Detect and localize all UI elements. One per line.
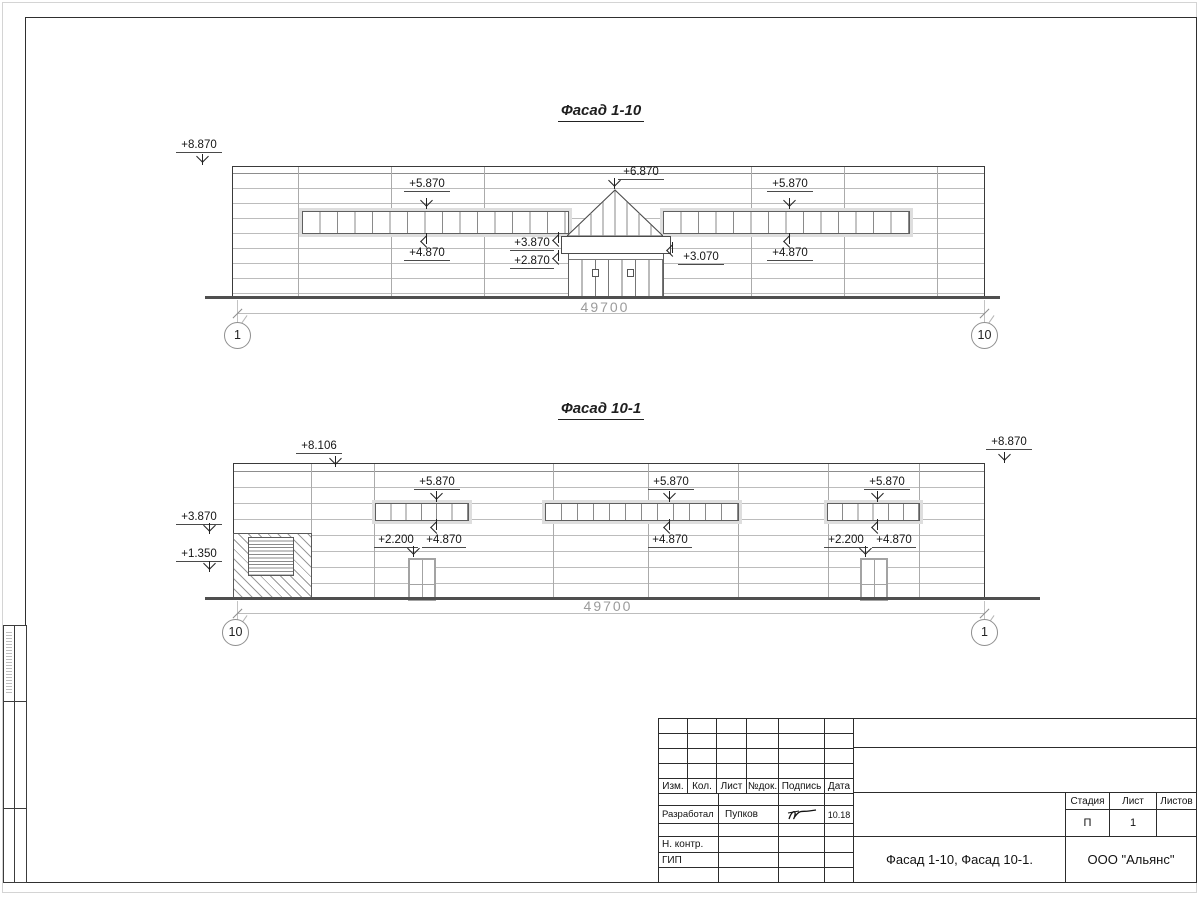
door-handle-icon xyxy=(627,269,634,277)
tb-cell xyxy=(719,824,779,837)
door-mullion xyxy=(422,560,423,599)
tb-cell xyxy=(779,824,825,837)
tb-cell xyxy=(747,749,779,764)
tb-cell xyxy=(717,749,747,764)
tb-designation-strip xyxy=(854,719,1196,748)
side-stamp-divider xyxy=(14,626,15,882)
tb-cell xyxy=(779,868,825,882)
tb-cell xyxy=(717,719,747,734)
facade2-title: Фасад 10-1 xyxy=(558,400,644,420)
elevation-mark-up-icon xyxy=(420,232,434,244)
elevation-mark-down-icon xyxy=(203,523,217,535)
side-stamp-row-line xyxy=(4,808,26,809)
door-handle-icon xyxy=(592,269,599,277)
tb-company: ООО "Альянс" xyxy=(1066,837,1196,882)
elevation-mark-up-icon xyxy=(663,518,677,530)
facade2-panel-joint xyxy=(374,464,375,598)
elevation-label: +3.070 xyxy=(678,251,724,265)
tb-cell xyxy=(659,794,719,806)
elevation-label: +8.870 xyxy=(986,436,1032,450)
side-stamp xyxy=(3,625,27,883)
facade1-dimension-text: 49700 xyxy=(555,301,655,313)
tb-header-sign: Подпись xyxy=(779,779,825,794)
tb-header-doc: №док. xyxy=(747,779,779,794)
facade2-panel-joint xyxy=(738,464,739,598)
elevation-mark-down-icon xyxy=(783,198,797,210)
elevation-mark-up-icon xyxy=(430,518,444,530)
tb-gip-label: ГИП xyxy=(659,853,719,868)
tb-razrab-signature xyxy=(779,806,825,824)
elevation-label: +5.870 xyxy=(864,476,910,490)
elevation-mark-down-icon xyxy=(420,198,434,210)
tb-cell xyxy=(779,853,825,868)
facade2-dimension-text: 49700 xyxy=(558,600,658,612)
drawing-sheet: Фасад 1-10 +8.870 +5.870 xyxy=(0,0,1200,900)
tb-cell xyxy=(825,719,854,734)
tb-cell xyxy=(854,793,1066,837)
tb-cell xyxy=(825,794,854,806)
elevation-label: +4.870 xyxy=(648,534,692,548)
elevation-mark-down-icon xyxy=(203,561,217,573)
tb-designation-strip2 xyxy=(854,748,1196,793)
facade1-parapet-band xyxy=(233,167,984,174)
facade1-window-strip-right xyxy=(663,211,910,234)
facade2-window-strip-2 xyxy=(545,503,739,521)
facade2-louver xyxy=(248,537,294,576)
entrance-mullions xyxy=(569,260,663,296)
facade1-canopy-pyramid xyxy=(567,189,663,237)
elevation-mark-down-icon xyxy=(998,452,1012,464)
tb-cell xyxy=(825,853,854,868)
tb-cell xyxy=(688,719,717,734)
tb-cell xyxy=(719,794,779,806)
tb-stage-value: П xyxy=(1066,810,1110,837)
tb-nkontr-label: Н. контр. xyxy=(659,837,719,853)
elevation-label: +5.870 xyxy=(404,178,450,192)
elevation-label: +1.350 xyxy=(176,548,222,562)
elevation-mark-up-icon xyxy=(871,518,885,530)
elevation-label: +8.870 xyxy=(176,139,222,153)
tb-sheets-label: Листов xyxy=(1157,793,1196,810)
elevation-mark-up-icon xyxy=(552,231,566,243)
facade2-panel-joint xyxy=(828,464,829,598)
tb-header-date: Дата xyxy=(825,779,854,794)
elevation-mark-down-icon xyxy=(859,546,873,558)
tb-cell xyxy=(779,719,825,734)
tb-sheets-value xyxy=(1157,810,1196,837)
elevation-label: +4.870 xyxy=(422,534,466,548)
elevation-mark-up-icon xyxy=(783,232,797,244)
facade1-axis-bubble-right: 10 xyxy=(971,322,998,349)
facade2-door-2 xyxy=(860,558,888,601)
tb-cell xyxy=(825,824,854,837)
elevation-mark-down-icon xyxy=(196,154,210,166)
facade1-window-strip-left xyxy=(302,211,569,234)
facade2-panel-joint xyxy=(919,464,920,598)
tb-cell xyxy=(719,837,779,853)
facade1-axis-bubble-left: 1 xyxy=(224,322,251,349)
facade2-parapet-band xyxy=(234,464,984,472)
facade2-axis-bubble-right: 1 xyxy=(971,619,998,646)
facade2-door-1 xyxy=(408,558,436,601)
elevation-label: +6.870 xyxy=(618,166,664,180)
title-block: Изм. Кол. Лист №док. Подпись Дата Разраб… xyxy=(658,718,1197,883)
elevation-label: +4.870 xyxy=(767,247,813,261)
elevation-mark-down-icon xyxy=(663,491,677,503)
elevation-label: +4.870 xyxy=(404,247,450,261)
facade1-panel-joint xyxy=(298,167,299,297)
facade2-axis-bubble-left: 10 xyxy=(222,619,249,646)
door-mullion xyxy=(874,560,875,599)
side-stamp-faint-text xyxy=(6,632,12,694)
tb-cell xyxy=(659,764,688,779)
tb-cell xyxy=(825,837,854,853)
tb-cell xyxy=(659,719,688,734)
tb-cell xyxy=(825,734,854,749)
facade1-canopy-band xyxy=(561,236,671,254)
tb-cell xyxy=(659,824,719,837)
signature-icon xyxy=(785,808,819,822)
facade2-panel-joint xyxy=(553,464,554,598)
tb-cell xyxy=(747,719,779,734)
tb-cell xyxy=(719,868,779,882)
tb-cell xyxy=(659,749,688,764)
tb-cell xyxy=(719,853,779,868)
tb-cell xyxy=(747,734,779,749)
tb-sheet-value: 1 xyxy=(1110,810,1157,837)
facade2-window-strip-1 xyxy=(375,503,469,521)
tb-cell xyxy=(747,764,779,779)
tb-cell xyxy=(688,734,717,749)
elevation-mark-down-icon xyxy=(329,456,343,468)
tb-cell xyxy=(825,749,854,764)
elevation-mark-down-icon xyxy=(430,491,444,503)
tb-razrab-name: Пупков xyxy=(719,806,779,824)
tb-cell xyxy=(779,764,825,779)
tb-cell xyxy=(779,837,825,853)
elevation-mark-down-icon xyxy=(608,178,622,190)
tb-doc-title: Фасад 1-10, Фасад 10-1. xyxy=(854,837,1066,882)
tb-header-izm: Изм. xyxy=(659,779,688,794)
elevation-label: +5.870 xyxy=(767,178,813,192)
door-rail xyxy=(410,584,434,585)
facade1-title: Фасад 1-10 xyxy=(558,102,644,122)
tb-razrab-date: 10.18 xyxy=(825,806,854,824)
elevation-mark-down-icon xyxy=(871,491,885,503)
tb-razrab-label: Разработал xyxy=(659,806,719,824)
elevation-label: +4.870 xyxy=(872,534,916,548)
tb-sheet-label: Лист xyxy=(1110,793,1157,810)
tb-cell xyxy=(688,749,717,764)
tb-cell xyxy=(825,764,854,779)
elevation-label: +3.870 xyxy=(510,237,554,251)
elevation-mark-down-icon xyxy=(407,546,421,558)
facade1-entrance-doors xyxy=(568,252,664,296)
tb-cell xyxy=(659,734,688,749)
tb-stage-label: Стадия xyxy=(1066,793,1110,810)
side-stamp-row-line xyxy=(4,701,26,702)
facade2-gate-hatched-block xyxy=(233,533,312,599)
tb-cell xyxy=(779,749,825,764)
tb-header-list: Лист xyxy=(717,779,747,794)
tb-cell xyxy=(779,734,825,749)
facade1-panel-joint xyxy=(937,167,938,297)
tb-cell xyxy=(717,764,747,779)
door-rail xyxy=(862,584,886,585)
tb-header-kol: Кол. xyxy=(688,779,717,794)
tb-cell xyxy=(659,868,719,882)
tb-cell xyxy=(717,734,747,749)
elevation-label: +2.870 xyxy=(510,255,554,269)
elevation-mark-up-icon xyxy=(552,249,566,261)
tb-cell xyxy=(779,794,825,806)
tb-cell xyxy=(688,764,717,779)
tb-cell xyxy=(825,868,854,882)
